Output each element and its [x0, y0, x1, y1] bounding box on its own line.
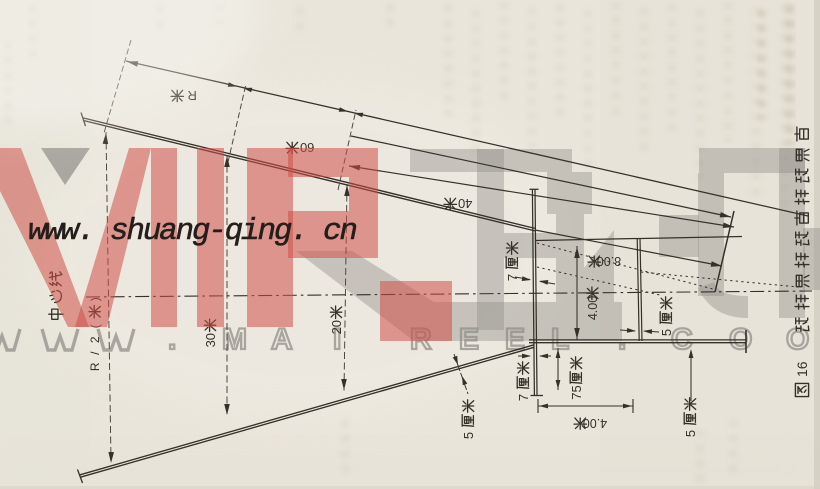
svg-text:75: 75 — [569, 385, 584, 399]
svg-text:5: 5 — [659, 329, 674, 336]
svg-text:5: 5 — [683, 430, 698, 437]
svg-text:2: 2 — [88, 336, 102, 343]
svg-text:5: 5 — [461, 432, 476, 439]
svg-text:.: . — [168, 323, 176, 356]
svg-text:8.00: 8.00 — [597, 254, 621, 268]
svg-text:20: 20 — [329, 320, 344, 334]
svg-text:www. shuang-qing. cn: www. shuang-qing. cn — [28, 214, 358, 249]
svg-text:30: 30 — [203, 333, 218, 347]
svg-text:16: 16 — [794, 361, 810, 377]
svg-text:4.00: 4.00 — [583, 416, 607, 430]
svg-text:40: 40 — [458, 196, 472, 211]
svg-text:7: 7 — [505, 274, 520, 281]
svg-text:M: M — [222, 323, 247, 356]
svg-text:4.00: 4.00 — [586, 296, 600, 320]
svg-text:A: A — [271, 323, 293, 356]
svg-text:7: 7 — [516, 394, 531, 401]
svg-text:R: R — [88, 362, 102, 371]
